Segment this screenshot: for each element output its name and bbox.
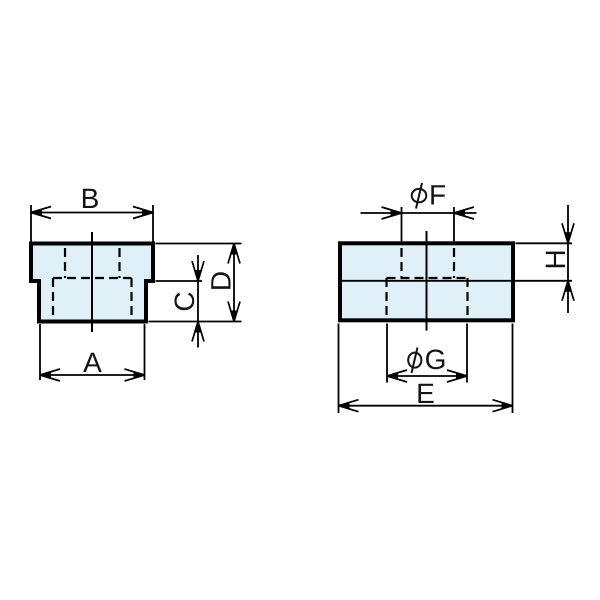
svg-text:A: A	[83, 347, 102, 378]
svg-text:C: C	[169, 291, 200, 311]
svg-text:B: B	[81, 183, 100, 214]
svg-text:D: D	[206, 271, 237, 291]
svg-text:G: G	[425, 344, 447, 375]
svg-text:H: H	[540, 249, 571, 269]
svg-text:F: F	[429, 180, 446, 211]
svg-text:E: E	[416, 378, 435, 409]
